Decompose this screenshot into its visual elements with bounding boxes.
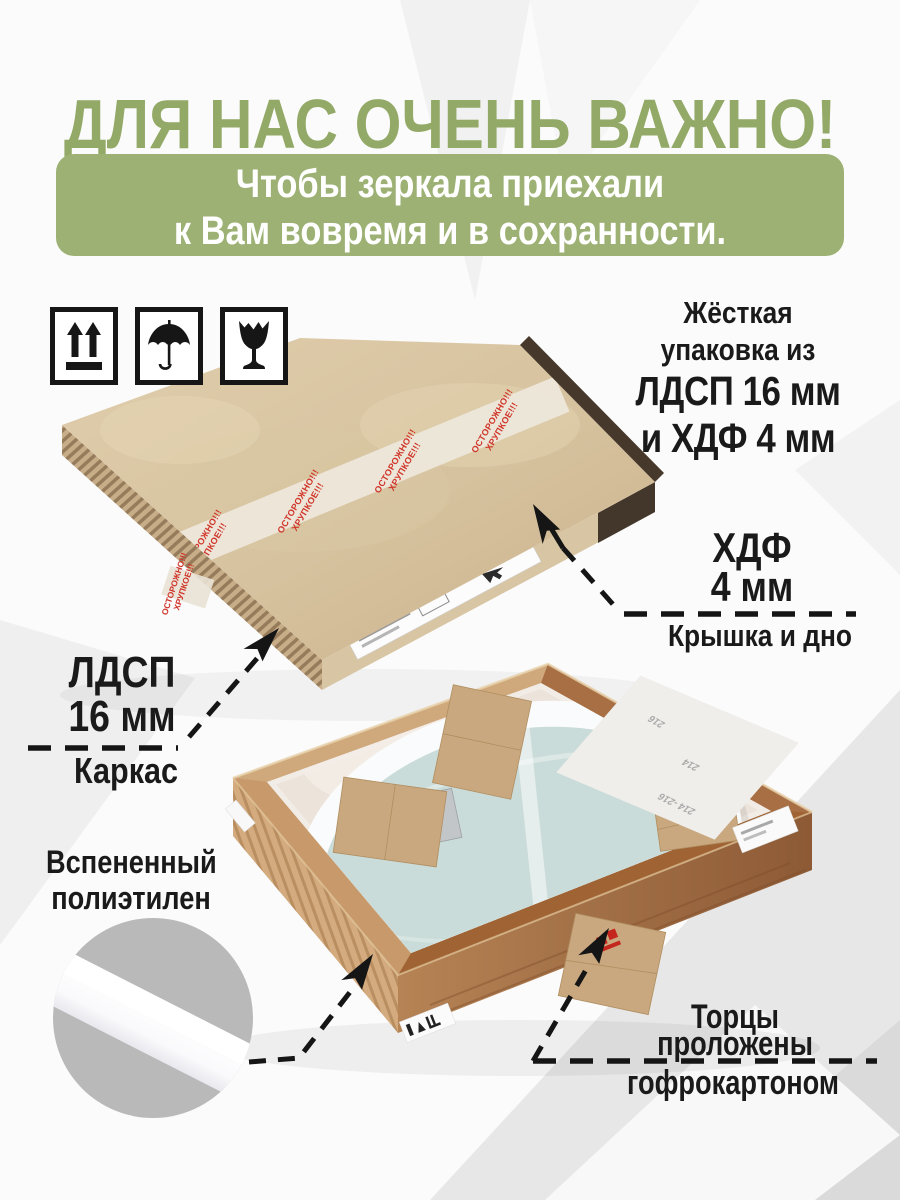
packaging-note-line-3: ЛДСП 16 мм: [611, 368, 866, 415]
banner-text: Чтобы зеркала приехали к Вам вовремя и в…: [111, 161, 789, 255]
ldsp-callout: ЛДСП 16 мм: [37, 651, 207, 739]
subtitle-banner: Чтобы зеркала приехали к Вам вовремя и в…: [56, 154, 844, 256]
hdf-callout: ХДФ 4 мм: [625, 528, 880, 606]
packaging-note-line-2: упаковка из: [611, 331, 866, 368]
packaging-note-line-1: Жёсткая: [611, 294, 866, 331]
foam-callout: Вспененный полиэтилен: [46, 844, 216, 916]
hdf-connector-dashed: [563, 548, 618, 610]
foam-line-1: Вспененный: [46, 844, 216, 880]
fragile-broken-glass-icon: [220, 307, 288, 385]
foam-line-2: полиэтилен: [46, 880, 216, 916]
hdf-material: ХДФ: [625, 528, 880, 567]
foam-inset: [0, 908, 278, 1118]
hdf-thickness: 4 мм: [625, 567, 880, 606]
banner-line-2: к Вам вовремя и в сохранности.: [111, 208, 789, 255]
ldsp-material: ЛДСП: [37, 651, 207, 695]
this-way-up-icon: [50, 307, 118, 385]
edges-callout: Торцы проложены: [619, 1004, 851, 1058]
keep-dry-umbrella-icon: [135, 307, 203, 385]
banner-line-1: Чтобы зеркала приехали: [111, 161, 789, 208]
infographic-page: ОСТОРОЖНО!!! ХРУПКОЕ!!! ОСТОРОЖНО!!! ХРУ…: [0, 0, 900, 1200]
edges-line-2: проложены: [619, 1031, 851, 1058]
ldsp-part: Каркас: [41, 750, 211, 792]
packaging-note-line-4: и ХДФ 4 мм: [611, 415, 866, 462]
page-title: ДЛЯ НАС ОЧЕНЬ ВАЖНО!: [63, 84, 837, 164]
handling-icons-row: [50, 307, 305, 385]
edges-line-3: гофрокартоном: [613, 1064, 853, 1103]
ldsp-thickness: 16 мм: [37, 695, 207, 739]
hdf-part: Крышка и дно: [633, 618, 888, 654]
packaging-note: Жёсткая упаковка из ЛДСП 16 мм и ХДФ 4 м…: [611, 294, 866, 462]
